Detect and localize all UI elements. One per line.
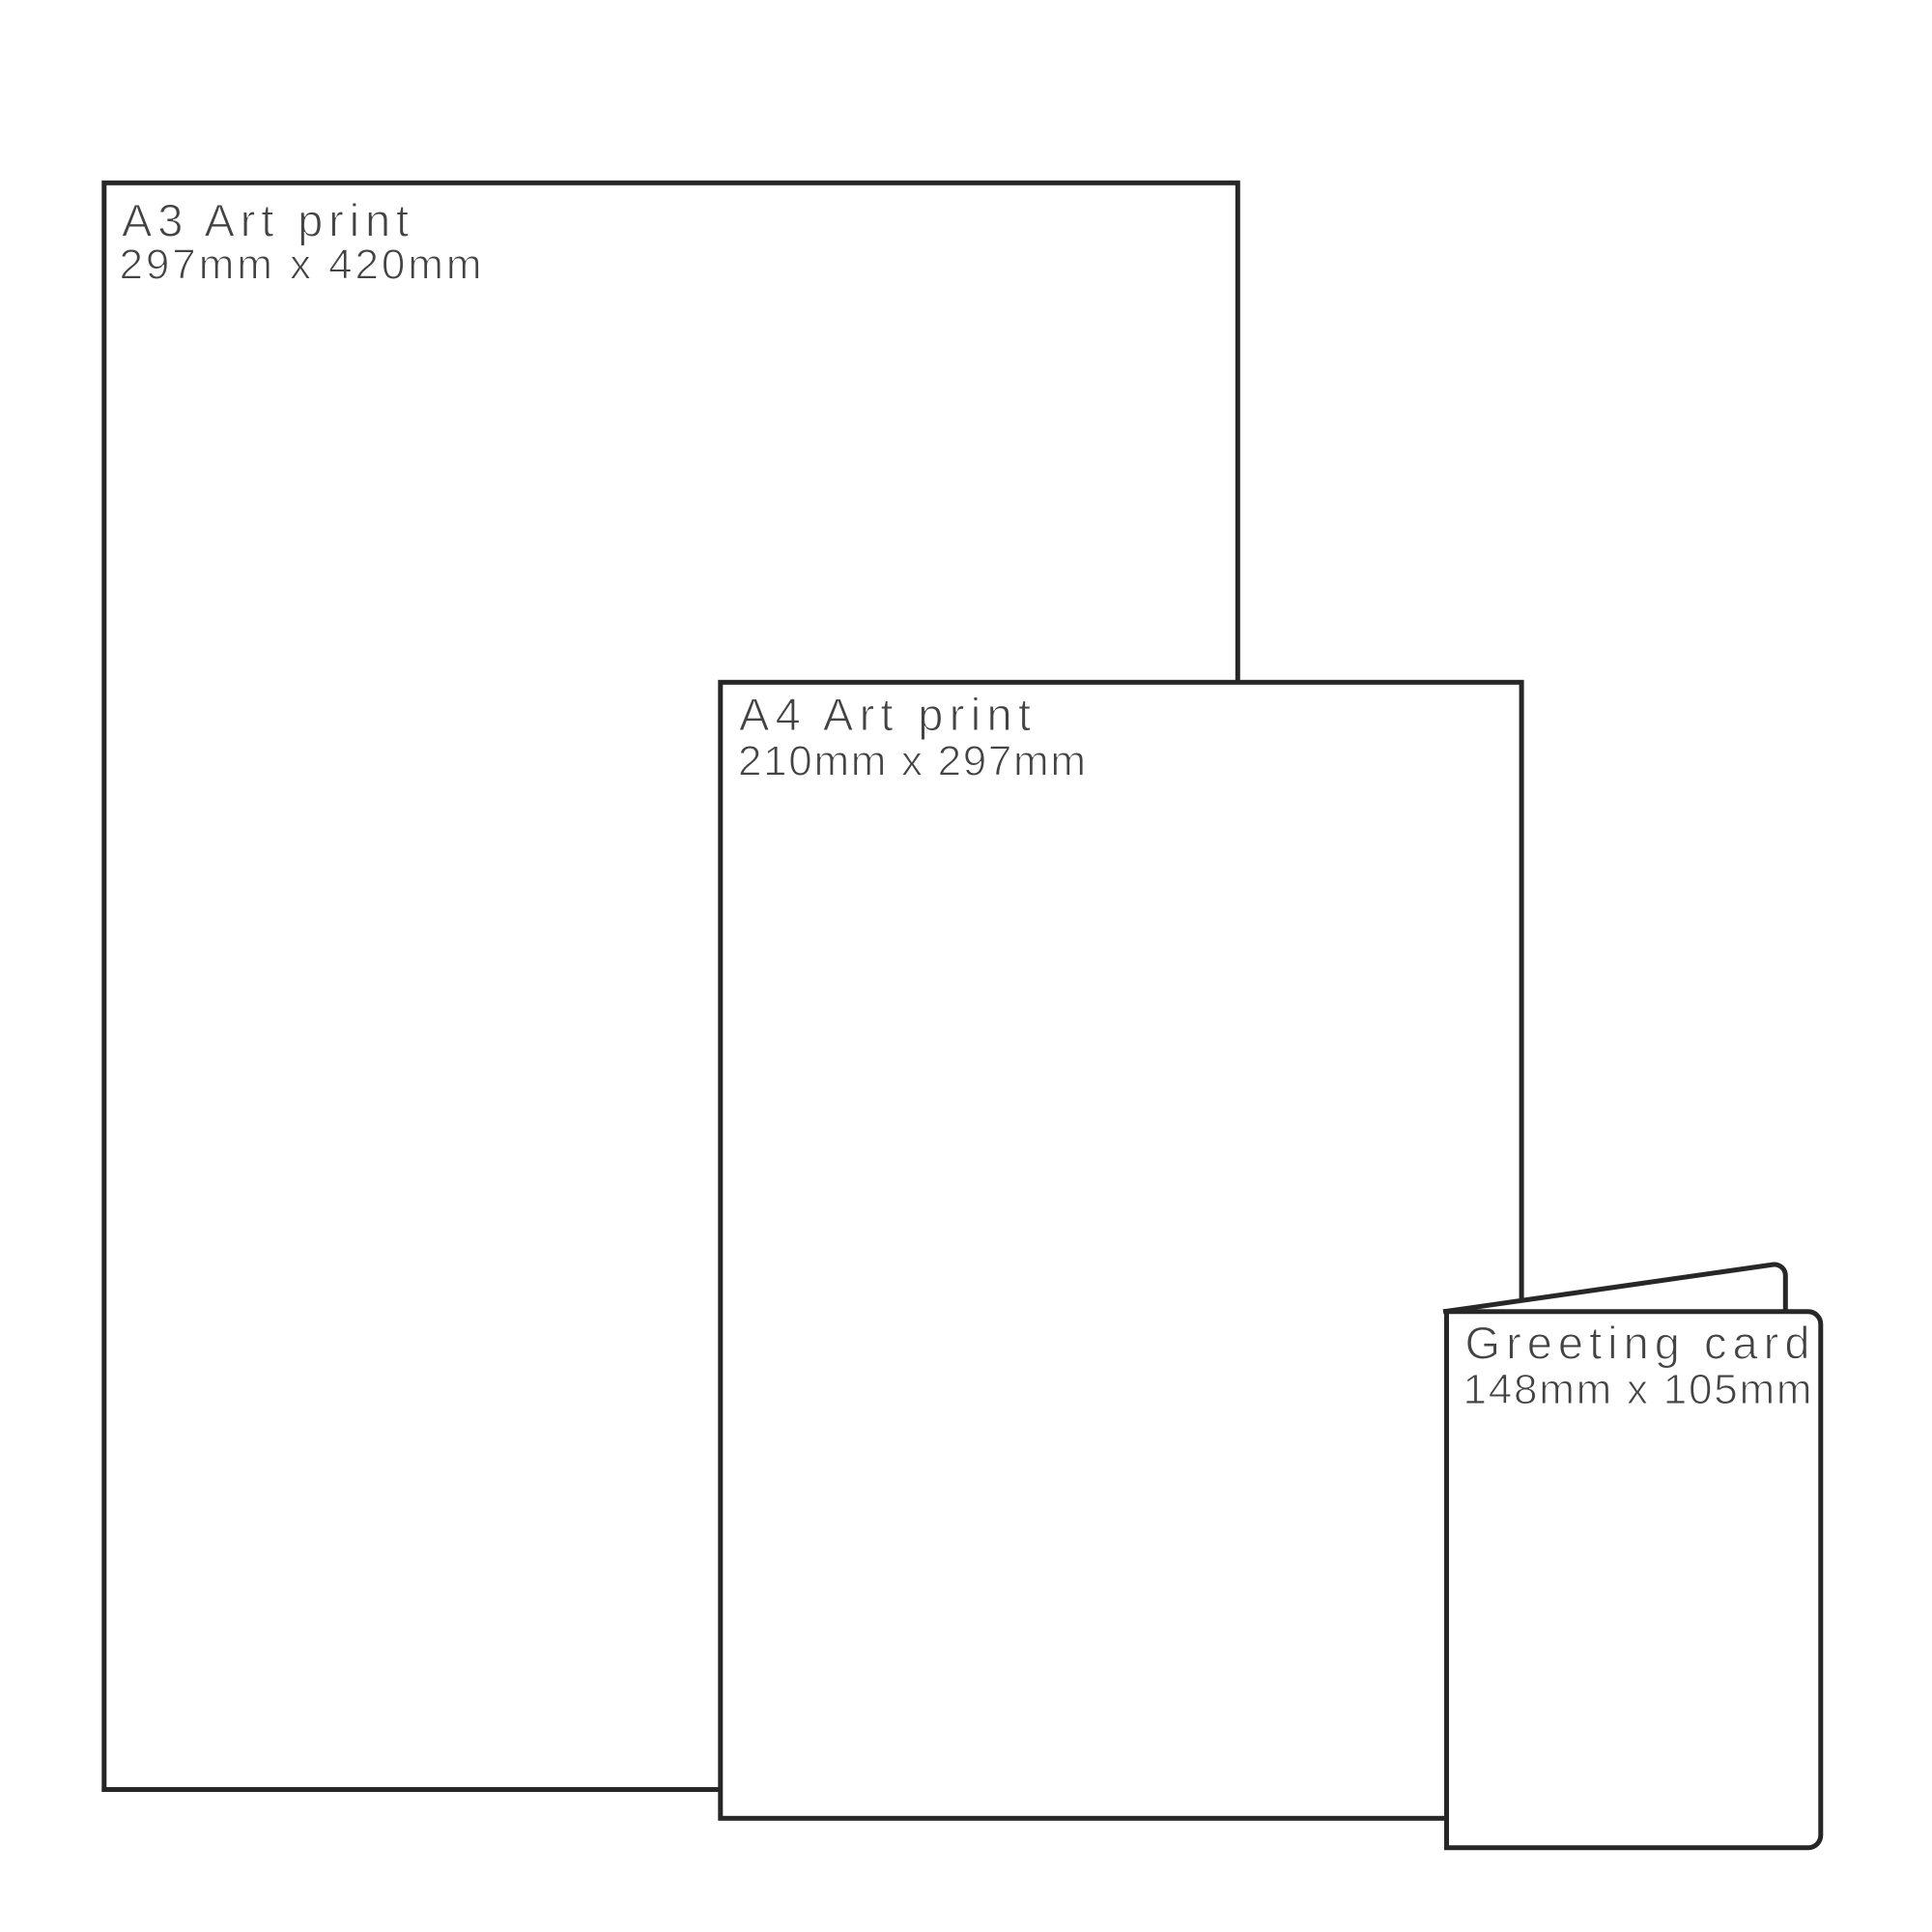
svg-text:A4 Art print: A4 Art print (739, 689, 1031, 740)
svg-text:210mm x 297mm: 210mm x 297mm (738, 737, 1086, 784)
svg-text:148mm x 105mm: 148mm x 105mm (1463, 1366, 1812, 1413)
svg-text:A3 Art print: A3 Art print (122, 194, 409, 245)
svg-text:297mm x 420mm: 297mm x 420mm (120, 241, 482, 288)
